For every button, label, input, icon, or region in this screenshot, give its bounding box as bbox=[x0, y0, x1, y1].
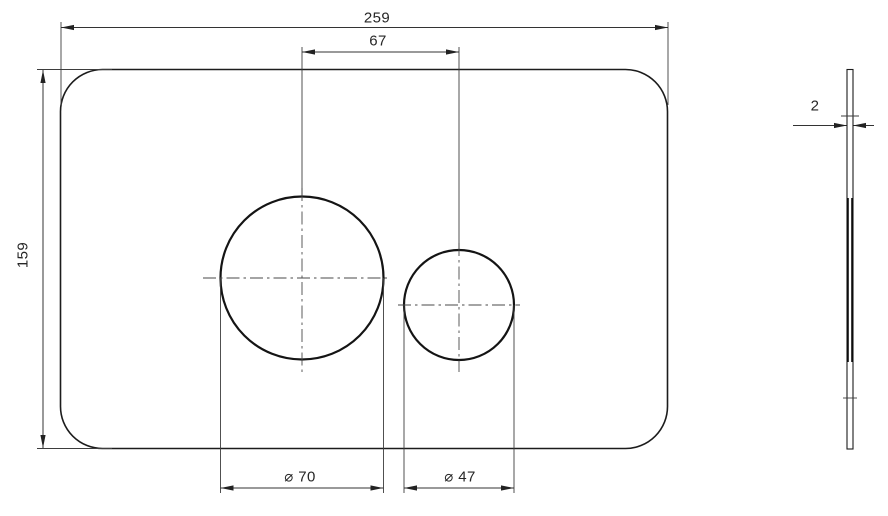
height-dimension-label: 159 bbox=[16, 240, 31, 270]
spacing-dimension bbox=[302, 49, 459, 54]
width-dimension-label: 259 bbox=[362, 11, 392, 26]
small-diameter-dimension bbox=[404, 485, 514, 490]
small-diameter-label: ⌀ 47 bbox=[442, 470, 477, 485]
large-diameter-label: ⌀ 70 bbox=[282, 470, 317, 485]
spacing-dimension-label: 67 bbox=[367, 34, 389, 49]
side-view-profile bbox=[841, 70, 859, 450]
technical-drawing-canvas: 259 67 159 ⌀ 70 ⌀ 47 2 bbox=[0, 0, 888, 516]
front-view-plate bbox=[61, 70, 668, 449]
large-diameter-dimension bbox=[221, 485, 384, 490]
thickness-dimension bbox=[793, 123, 874, 128]
drawing-linework bbox=[0, 0, 888, 516]
height-dimension bbox=[40, 70, 45, 448]
thickness-dimension-label: 2 bbox=[809, 99, 822, 114]
